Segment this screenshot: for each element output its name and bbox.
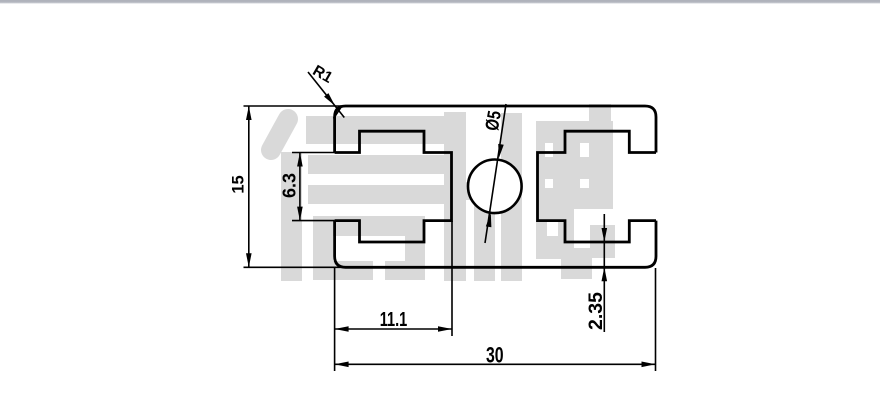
svg-text:30: 30 [486, 344, 504, 368]
svg-text:6.3: 6.3 [279, 173, 299, 198]
svg-text:11.1: 11.1 [380, 308, 408, 331]
svg-text:2.35: 2.35 [585, 292, 607, 330]
svg-text:15: 15 [230, 175, 248, 193]
svg-text:Ø5: Ø5 [481, 109, 505, 132]
svg-text:R1: R1 [310, 62, 336, 87]
